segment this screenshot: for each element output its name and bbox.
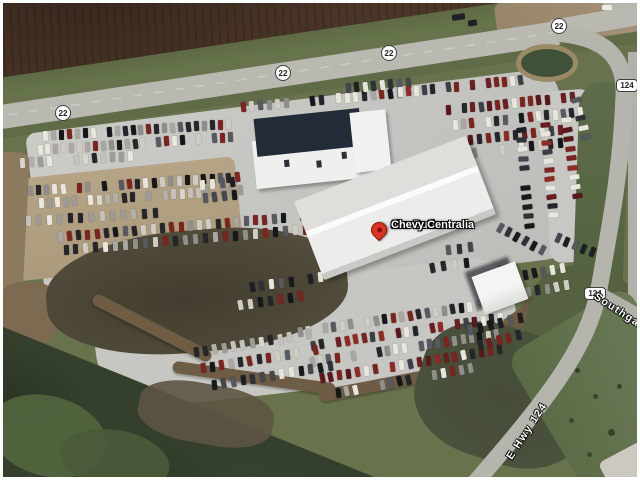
car — [415, 309, 422, 320]
car — [527, 112, 534, 123]
car — [69, 143, 74, 153]
car — [45, 144, 51, 154]
car — [219, 178, 225, 189]
car — [162, 190, 168, 201]
car — [99, 211, 105, 221]
car — [211, 380, 217, 390]
car — [240, 375, 246, 386]
car — [331, 322, 337, 332]
car — [193, 234, 199, 244]
car — [511, 98, 517, 109]
car — [540, 122, 550, 128]
car — [538, 244, 547, 255]
car — [67, 129, 73, 139]
car — [75, 128, 80, 138]
car — [354, 367, 361, 378]
car — [72, 196, 78, 206]
car — [36, 215, 41, 225]
car — [578, 124, 589, 131]
car — [451, 335, 457, 346]
car — [543, 158, 554, 164]
car — [529, 240, 538, 251]
car — [219, 132, 224, 142]
car — [552, 109, 558, 119]
car — [445, 82, 451, 93]
car — [266, 100, 271, 110]
car — [544, 283, 550, 294]
car — [379, 80, 385, 91]
car — [258, 336, 264, 347]
car — [382, 314, 388, 325]
car — [275, 99, 281, 109]
car — [343, 386, 350, 397]
car — [545, 185, 555, 191]
car — [262, 228, 268, 239]
car — [126, 179, 132, 190]
car — [220, 378, 227, 389]
car — [440, 368, 447, 379]
car — [517, 313, 524, 324]
car — [88, 195, 94, 205]
car — [454, 319, 460, 330]
car — [365, 317, 371, 327]
car — [502, 115, 507, 125]
car — [390, 313, 396, 323]
car — [390, 361, 396, 371]
car — [309, 95, 315, 106]
car — [94, 228, 100, 239]
car — [218, 119, 223, 129]
car — [242, 229, 248, 239]
car — [77, 142, 83, 152]
car — [528, 96, 534, 106]
car — [334, 353, 340, 363]
car — [298, 366, 304, 376]
building-wing — [349, 109, 391, 172]
car — [287, 292, 293, 303]
car — [413, 85, 419, 95]
car — [344, 335, 351, 346]
car — [262, 214, 268, 224]
car — [47, 198, 53, 208]
car — [443, 353, 450, 364]
car — [244, 216, 249, 226]
car — [412, 325, 418, 336]
car — [249, 338, 255, 349]
car — [503, 131, 509, 141]
car — [269, 279, 275, 289]
car — [115, 126, 120, 136]
car — [202, 193, 208, 203]
car — [152, 208, 158, 218]
car — [55, 197, 61, 207]
car — [569, 174, 580, 180]
car — [90, 127, 96, 138]
car — [227, 132, 232, 142]
car — [57, 214, 62, 224]
car — [221, 191, 228, 202]
car — [101, 181, 107, 192]
car — [44, 185, 50, 195]
car — [562, 126, 573, 133]
car — [63, 245, 68, 255]
car — [195, 134, 201, 144]
car — [27, 186, 33, 196]
car — [535, 111, 541, 122]
car — [495, 222, 504, 233]
car — [388, 378, 394, 389]
car — [351, 350, 357, 361]
satellite-map[interactable]: Jim Butler Chevy Centralia 2222222212412… — [0, 0, 640, 480]
car — [253, 215, 258, 225]
car — [288, 276, 294, 286]
car — [362, 81, 368, 92]
car — [542, 140, 552, 145]
rooftop-unit — [316, 160, 322, 167]
car — [93, 141, 98, 151]
car — [176, 176, 181, 186]
car — [229, 177, 235, 188]
car — [36, 185, 41, 195]
car — [438, 322, 444, 332]
car — [398, 311, 405, 322]
car — [469, 118, 475, 128]
car — [554, 232, 563, 243]
car — [460, 119, 466, 129]
car — [160, 223, 166, 233]
car — [501, 76, 507, 86]
car — [458, 364, 465, 375]
car — [452, 120, 458, 130]
car — [570, 183, 581, 190]
car — [259, 372, 266, 383]
car — [206, 219, 212, 230]
car — [88, 212, 94, 223]
car — [429, 84, 435, 94]
car — [517, 75, 524, 86]
car — [200, 363, 206, 374]
car — [61, 143, 67, 153]
car — [78, 213, 83, 223]
car — [105, 194, 110, 204]
car — [370, 81, 376, 92]
car — [336, 93, 342, 103]
car — [397, 87, 403, 97]
car — [528, 141, 534, 151]
car — [103, 228, 109, 239]
car — [503, 99, 509, 110]
car — [113, 193, 119, 203]
car — [370, 90, 376, 101]
car — [185, 121, 191, 132]
car — [441, 305, 447, 315]
car — [405, 86, 411, 97]
car — [469, 80, 475, 90]
car — [445, 105, 450, 115]
car — [549, 264, 556, 275]
car — [344, 92, 350, 102]
car — [228, 358, 235, 369]
car — [39, 198, 44, 208]
car — [520, 236, 529, 247]
car — [335, 388, 341, 399]
car — [509, 76, 515, 87]
car — [443, 336, 450, 347]
car — [130, 192, 135, 202]
car — [469, 348, 475, 359]
car — [188, 188, 193, 198]
car — [271, 214, 277, 224]
car — [354, 82, 360, 92]
car — [170, 122, 176, 133]
car — [135, 179, 140, 189]
car — [524, 223, 535, 229]
car — [124, 139, 130, 150]
car — [553, 281, 560, 292]
car — [249, 373, 256, 384]
car — [85, 182, 91, 192]
car — [566, 155, 577, 161]
car — [530, 128, 536, 139]
car — [233, 230, 238, 240]
car — [146, 124, 152, 134]
car — [378, 330, 385, 341]
car — [85, 142, 90, 152]
car — [466, 301, 473, 312]
car — [100, 140, 106, 150]
car — [544, 94, 550, 104]
car — [512, 231, 521, 242]
car — [575, 115, 586, 122]
car — [563, 136, 574, 142]
car — [63, 197, 69, 207]
car — [113, 241, 118, 251]
car — [505, 332, 512, 343]
car — [500, 144, 506, 154]
car — [531, 268, 538, 279]
car — [393, 344, 399, 354]
car — [544, 176, 555, 182]
car — [379, 89, 385, 100]
car — [240, 102, 246, 112]
car — [452, 259, 458, 269]
car — [536, 95, 542, 106]
car — [180, 135, 186, 145]
car — [337, 370, 343, 380]
car — [131, 209, 137, 219]
car — [265, 352, 271, 362]
car — [209, 179, 215, 189]
car — [130, 125, 136, 135]
car — [311, 345, 318, 356]
car — [523, 214, 533, 219]
car — [239, 339, 246, 350]
car — [521, 194, 532, 200]
car — [91, 153, 97, 164]
car — [542, 149, 553, 156]
car — [297, 327, 303, 338]
car — [515, 330, 522, 341]
car — [277, 333, 284, 344]
car — [435, 338, 441, 348]
car — [425, 356, 431, 367]
car — [451, 351, 458, 362]
car — [353, 334, 360, 345]
car — [322, 323, 328, 333]
car — [123, 240, 129, 250]
car — [274, 351, 280, 362]
car — [122, 125, 128, 135]
car — [521, 185, 531, 191]
car — [113, 227, 119, 238]
car — [269, 370, 276, 381]
car — [110, 210, 116, 221]
car — [327, 361, 333, 372]
car — [518, 156, 528, 161]
car — [519, 165, 529, 171]
car — [336, 337, 343, 348]
car — [222, 231, 228, 242]
car — [562, 236, 570, 247]
car — [348, 319, 355, 330]
car — [563, 280, 569, 291]
car — [433, 307, 439, 317]
car — [162, 123, 167, 133]
car — [178, 222, 183, 232]
car — [561, 117, 571, 123]
car — [146, 191, 151, 201]
car — [495, 100, 501, 111]
car — [120, 210, 126, 221]
car — [213, 232, 219, 242]
car — [68, 213, 73, 223]
car — [46, 156, 52, 166]
car — [434, 354, 440, 365]
car — [507, 315, 514, 326]
car — [445, 245, 451, 255]
car — [151, 177, 157, 187]
car — [100, 153, 106, 163]
car — [440, 261, 447, 272]
car — [211, 344, 218, 355]
car — [288, 367, 294, 378]
car — [234, 217, 240, 228]
car — [416, 357, 422, 368]
car — [407, 310, 414, 321]
car — [485, 133, 491, 144]
car — [109, 152, 114, 162]
car — [273, 227, 278, 237]
car — [209, 361, 215, 371]
car — [108, 140, 114, 150]
car — [387, 88, 394, 99]
car — [19, 158, 25, 168]
car — [456, 243, 462, 253]
car — [256, 354, 262, 365]
car — [202, 345, 209, 356]
car — [565, 145, 576, 151]
car — [51, 130, 57, 141]
car — [494, 116, 500, 126]
car — [118, 152, 123, 162]
car — [73, 244, 78, 254]
car — [171, 189, 176, 199]
car — [561, 93, 567, 103]
car — [467, 363, 474, 374]
car — [544, 167, 554, 173]
car — [319, 339, 326, 350]
car — [82, 154, 87, 164]
car — [52, 184, 58, 194]
car — [141, 225, 147, 236]
car — [197, 220, 202, 230]
car — [478, 101, 484, 112]
car — [224, 217, 230, 228]
car — [116, 139, 121, 149]
car — [571, 239, 580, 250]
car — [453, 81, 458, 91]
car — [237, 185, 243, 195]
car — [319, 373, 326, 384]
car — [185, 175, 190, 185]
car — [57, 232, 63, 243]
car — [278, 369, 284, 380]
car — [476, 134, 482, 144]
car — [249, 101, 255, 112]
car — [127, 151, 132, 161]
car — [172, 136, 178, 146]
car — [284, 349, 290, 360]
car — [257, 100, 263, 110]
car — [278, 278, 284, 289]
car — [522, 270, 529, 281]
car — [28, 157, 33, 167]
car — [173, 235, 179, 245]
car — [546, 194, 557, 200]
car — [247, 298, 254, 309]
car — [345, 83, 350, 93]
car — [132, 138, 138, 149]
car — [209, 120, 214, 130]
car — [485, 116, 491, 127]
car — [339, 320, 345, 331]
car — [66, 231, 72, 242]
car — [292, 225, 298, 235]
car — [37, 145, 43, 155]
car — [487, 101, 493, 111]
car — [284, 98, 289, 108]
car — [211, 192, 218, 203]
car — [548, 212, 558, 217]
car — [463, 258, 469, 268]
car — [203, 233, 209, 243]
car — [194, 121, 200, 131]
car — [160, 177, 166, 187]
car — [220, 342, 227, 353]
car — [399, 360, 405, 370]
car — [462, 103, 467, 113]
car — [53, 144, 58, 154]
car — [496, 344, 502, 355]
car — [154, 123, 159, 133]
car — [202, 120, 207, 130]
car — [193, 347, 199, 358]
car — [522, 204, 533, 210]
car — [379, 379, 386, 390]
car — [547, 203, 557, 209]
car — [215, 218, 221, 228]
car — [568, 165, 578, 171]
